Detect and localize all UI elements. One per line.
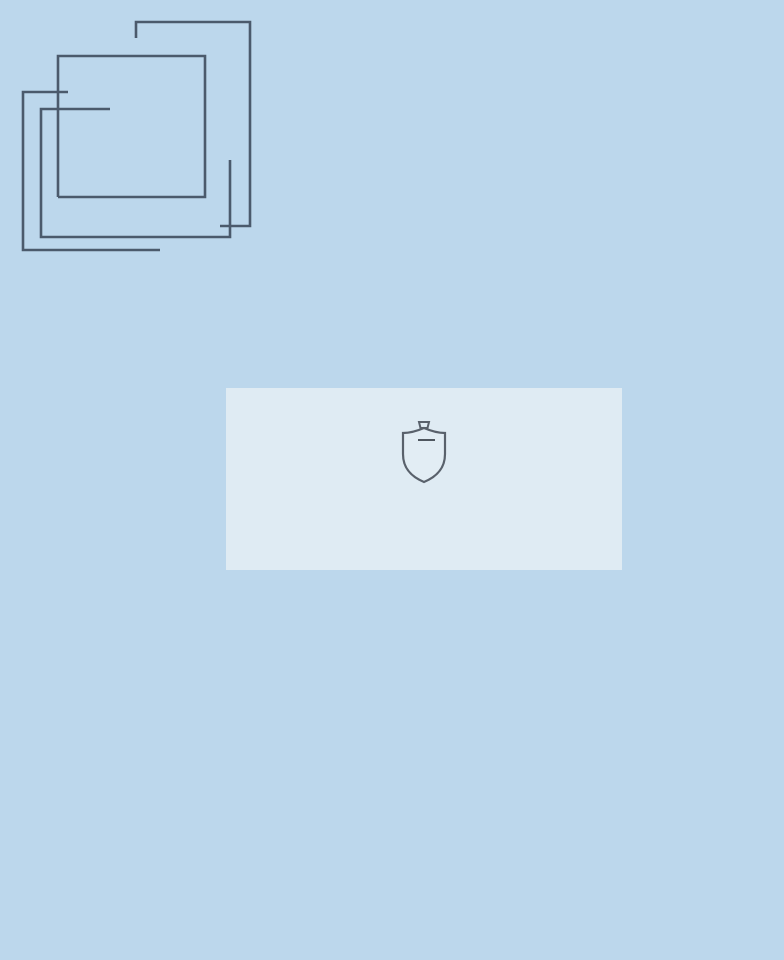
logo-frames [8, 4, 278, 274]
title-band [226, 388, 622, 570]
shield-emblem-icon [398, 420, 450, 484]
poster [0, 0, 784, 960]
four-rooms-logo [8, 4, 278, 274]
